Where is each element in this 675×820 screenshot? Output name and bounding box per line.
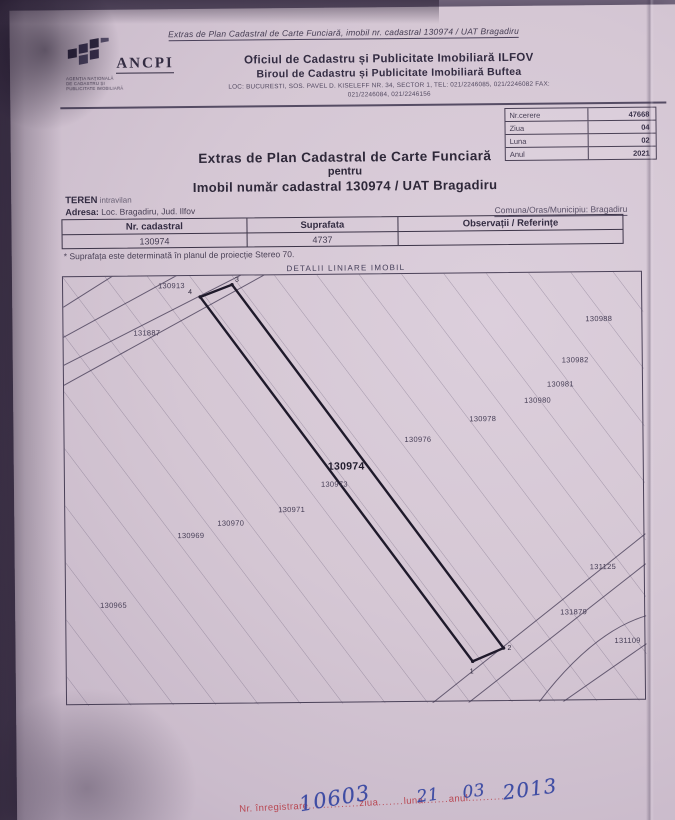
address-line: Adresa: Loc. Bragadiru, Jud. Ilfov	[65, 206, 195, 217]
ancpi-flag-icon	[66, 38, 112, 68]
paper-sheet: Extras de Plan Cadastral de Carte Funcia…	[9, 4, 675, 820]
handwritten-month: 03	[462, 780, 487, 802]
cadastral-map: 1309131318871309881309821309811309801309…	[62, 271, 646, 706]
office-address: LOC: BUCURESTI, SOS. PAVEL D. KISELEFF N…	[140, 80, 638, 103]
vertex-number-label: 4	[188, 289, 192, 296]
vertex-labels: 3421	[63, 272, 645, 705]
parcel-table: Nr. cadastral Suprafata Observații / Ref…	[61, 214, 623, 249]
vertex-number-label: 1	[470, 668, 474, 675]
vertex-number-label: 2	[508, 645, 512, 652]
paper-corner-shadow	[0, 687, 198, 820]
scanned-document-photo: Extras de Plan Cadastral de Carte Funcia…	[0, 0, 675, 820]
document-title: Extras de Plan Cadastral de Carte Funcia…	[11, 146, 675, 196]
land-type-line: TEREN intravilan	[65, 195, 132, 207]
projection-note: * Suprafața este determinată în planul d…	[64, 249, 295, 261]
bureau-name: Biroul de Cadastru și Publicitate Imobil…	[140, 65, 638, 82]
top-line-text: Extras de Plan Cadastral de Carte Funcia…	[168, 26, 519, 41]
vertex-number-label: 3	[235, 277, 239, 284]
office-header: Oficiul de Cadastru și Publicitate Imobi…	[140, 51, 638, 103]
registration-stamp: Nr. înregistrare..............ziua......…	[239, 788, 569, 815]
handwritten-day: 21	[416, 784, 441, 807]
handwritten-registration-number: 10603	[297, 780, 372, 816]
handwritten-year: 2013	[501, 773, 559, 804]
